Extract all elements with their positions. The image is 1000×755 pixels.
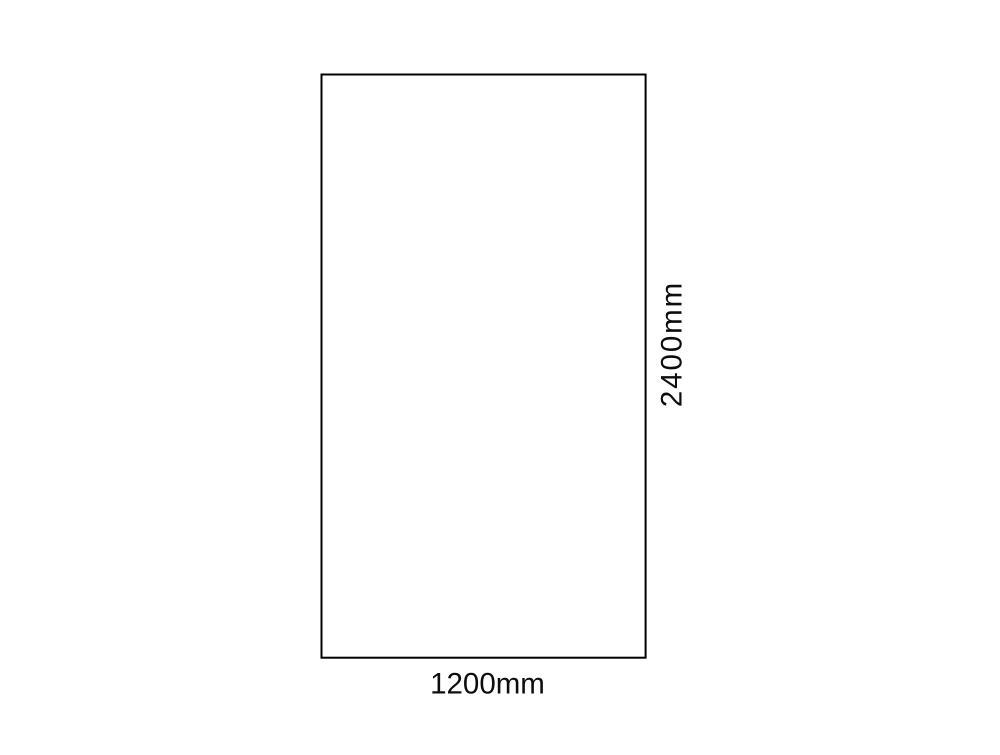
svg-text:2400mm: 2400mm <box>655 281 688 407</box>
svg-text:1200mm: 1200mm <box>430 667 545 700</box>
